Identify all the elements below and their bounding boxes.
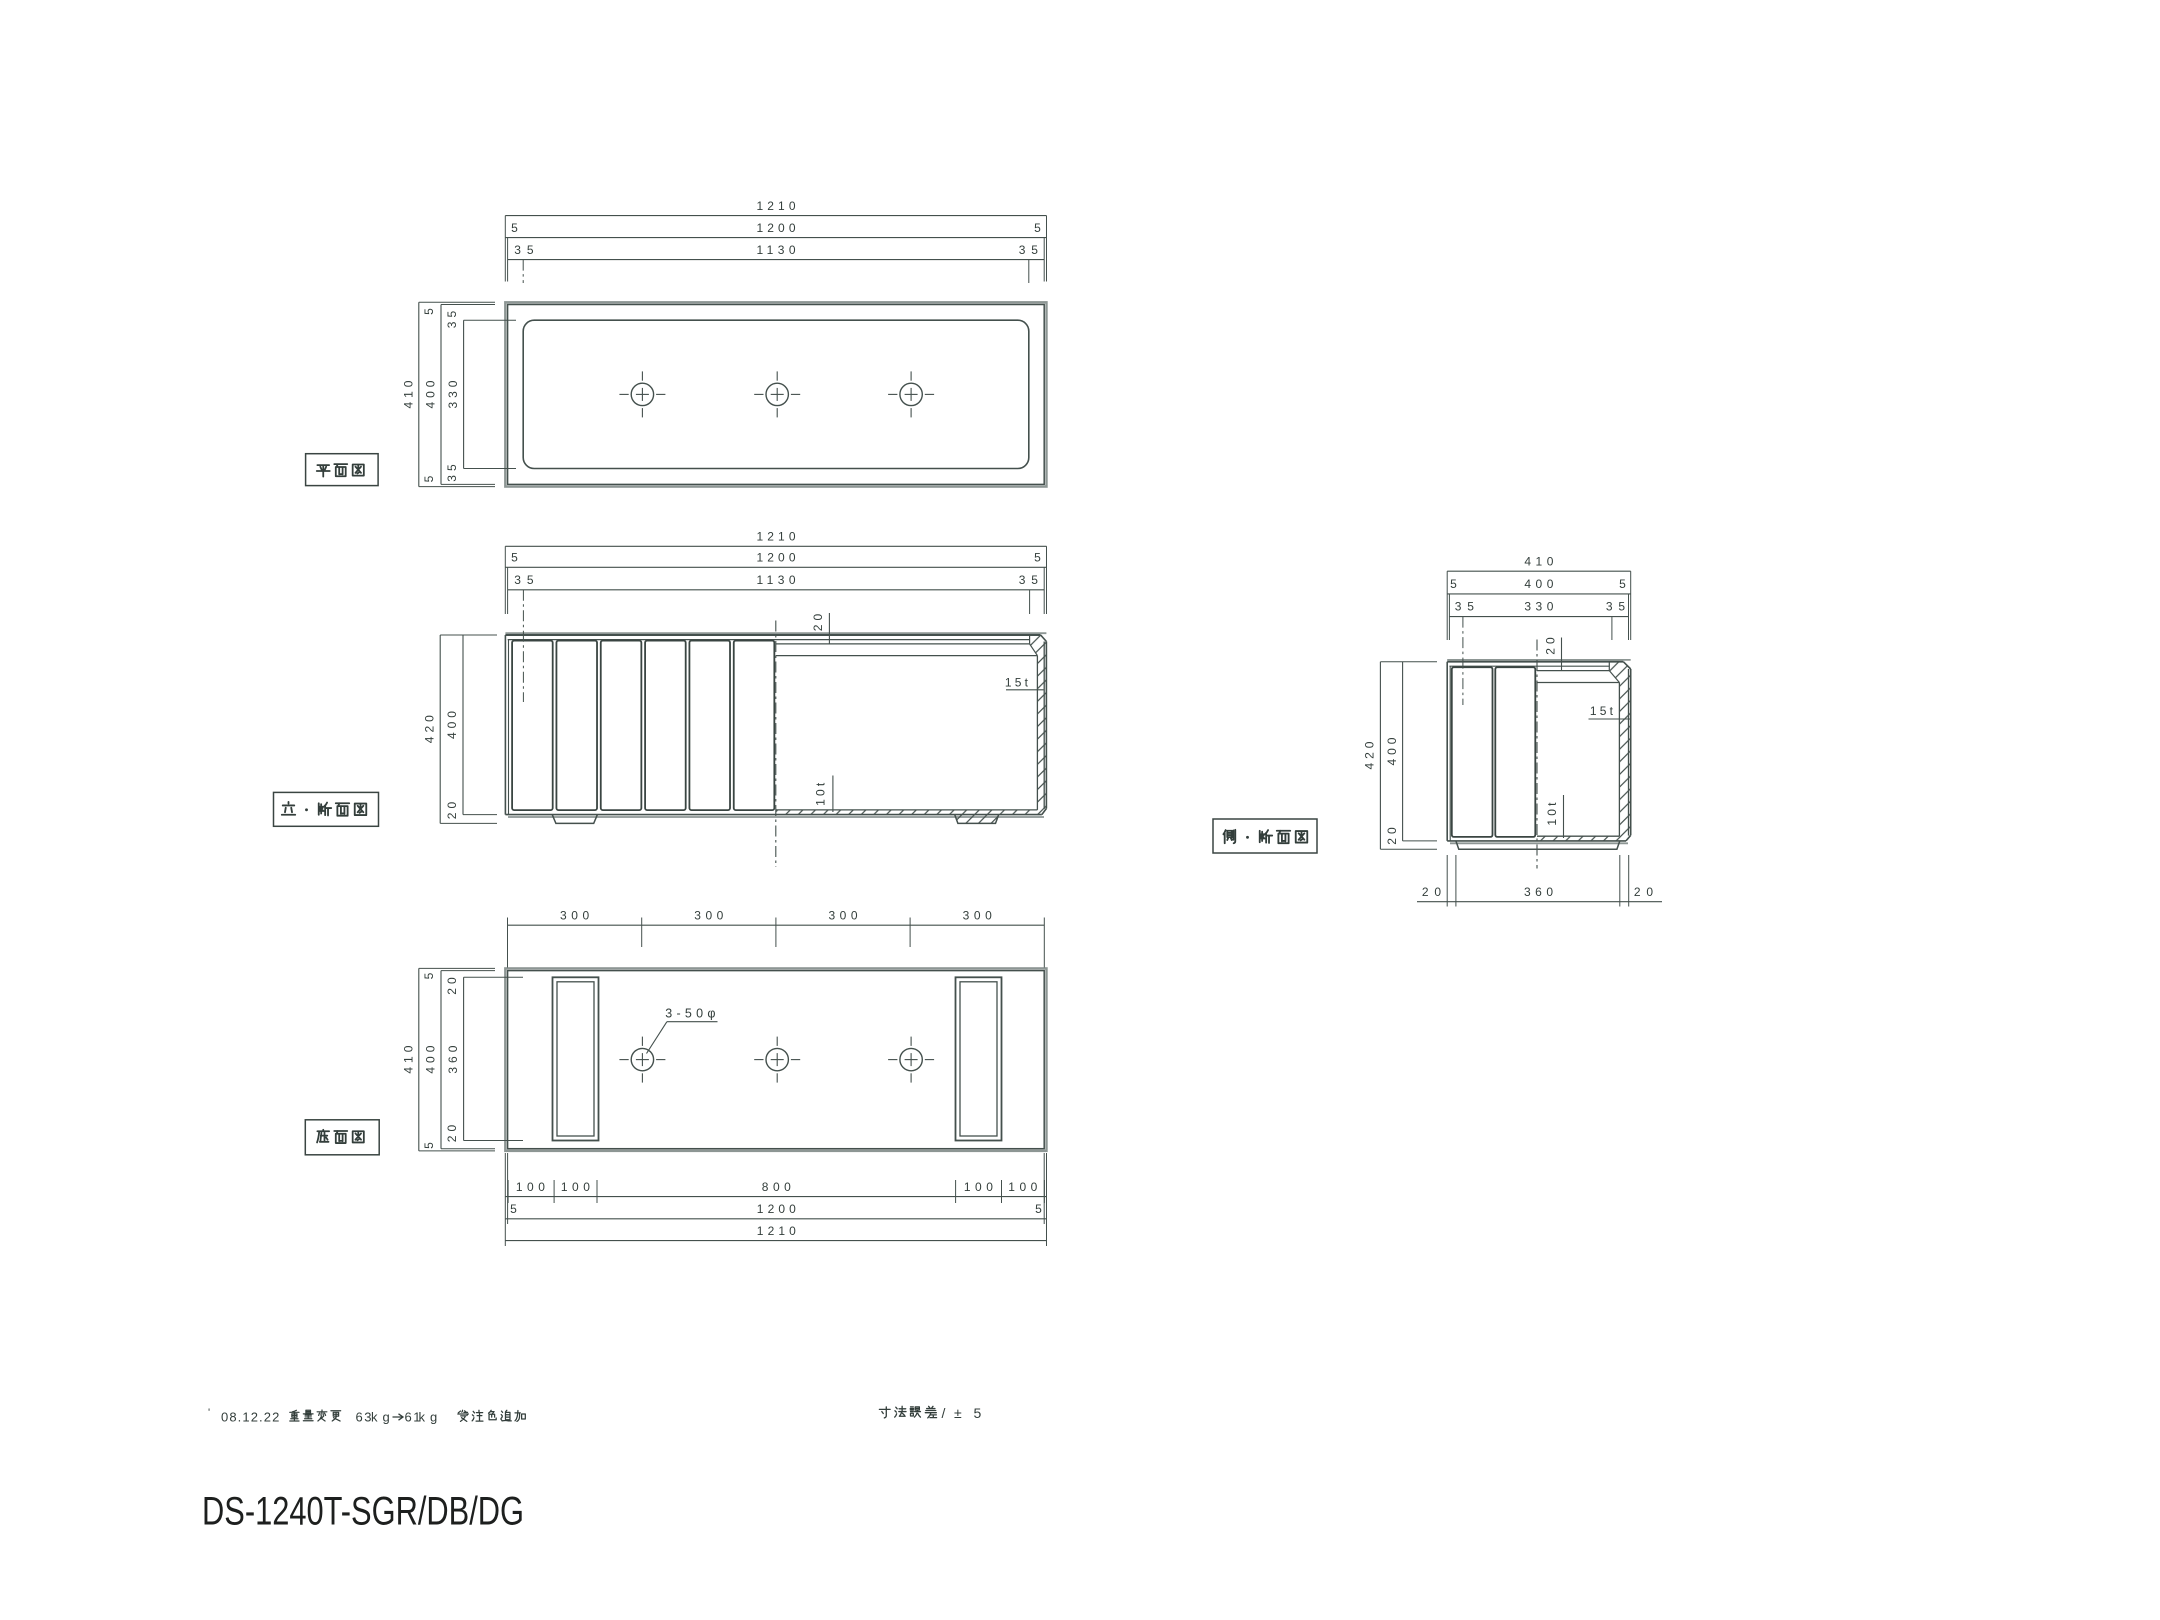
svg-text:20: 20 bbox=[445, 801, 459, 819]
svg-text:1200: 1200 bbox=[757, 1202, 796, 1216]
svg-text:400: 400 bbox=[424, 380, 438, 408]
svg-text:k: k bbox=[371, 1410, 378, 1425]
svg-text:5: 5 bbox=[511, 551, 518, 565]
svg-text:1130: 1130 bbox=[757, 573, 796, 587]
svg-text:1130: 1130 bbox=[757, 243, 796, 257]
svg-text:100: 100 bbox=[964, 1180, 993, 1194]
svg-text:20: 20 bbox=[445, 977, 459, 995]
svg-text:5: 5 bbox=[1034, 551, 1041, 565]
svg-text:400: 400 bbox=[1385, 737, 1399, 765]
svg-text:10t: 10t bbox=[814, 780, 828, 806]
svg-text:100: 100 bbox=[561, 1180, 590, 1194]
svg-text:100: 100 bbox=[1008, 1180, 1037, 1194]
svg-text:20: 20 bbox=[811, 613, 825, 631]
svg-text:410: 410 bbox=[1524, 554, 1553, 568]
svg-text:5: 5 bbox=[974, 1405, 982, 1421]
svg-text:20: 20 bbox=[1422, 885, 1442, 899]
svg-text:1200: 1200 bbox=[757, 221, 796, 235]
svg-text:5: 5 bbox=[422, 972, 436, 979]
svg-text:20: 20 bbox=[445, 1124, 459, 1142]
svg-text:±: ± bbox=[954, 1405, 962, 1421]
svg-text:35: 35 bbox=[445, 310, 459, 328]
svg-text:330: 330 bbox=[446, 380, 460, 408]
svg-text:420: 420 bbox=[1363, 741, 1377, 769]
svg-text:410: 410 bbox=[402, 1045, 416, 1073]
svg-text:5: 5 bbox=[1450, 577, 1457, 591]
svg-text:400: 400 bbox=[424, 1045, 438, 1073]
svg-text:100: 100 bbox=[516, 1180, 545, 1194]
svg-text:360: 360 bbox=[446, 1045, 460, 1073]
svg-text:300: 300 bbox=[828, 908, 857, 922]
svg-text:DS-1240T-SGR/DB/DG: DS-1240T-SGR/DB/DG bbox=[202, 1490, 524, 1534]
svg-text:35: 35 bbox=[1606, 600, 1626, 614]
svg-text:1210: 1210 bbox=[757, 199, 796, 213]
svg-text:5: 5 bbox=[1034, 221, 1041, 235]
svg-text:35: 35 bbox=[514, 243, 534, 257]
svg-text:20: 20 bbox=[1634, 885, 1654, 899]
svg-text:35: 35 bbox=[1019, 243, 1039, 257]
svg-text:5: 5 bbox=[422, 308, 436, 315]
svg-text:300: 300 bbox=[560, 908, 589, 922]
svg-text:800: 800 bbox=[762, 1180, 791, 1194]
svg-text:1210: 1210 bbox=[757, 530, 796, 544]
svg-text:300: 300 bbox=[694, 908, 723, 922]
svg-text:400: 400 bbox=[445, 711, 459, 739]
svg-text:360: 360 bbox=[1524, 885, 1553, 899]
svg-text:3-50φ: 3-50φ bbox=[665, 1006, 720, 1020]
svg-text:420: 420 bbox=[423, 715, 437, 743]
svg-text:g: g bbox=[383, 1410, 390, 1425]
svg-text:10t: 10t bbox=[1545, 799, 1559, 825]
svg-text:g: g bbox=[430, 1410, 437, 1425]
svg-text:k: k bbox=[419, 1410, 426, 1425]
svg-text:300: 300 bbox=[963, 908, 992, 922]
svg-text:35: 35 bbox=[445, 464, 459, 482]
svg-text:5: 5 bbox=[422, 475, 436, 482]
svg-text:35: 35 bbox=[1019, 573, 1039, 587]
svg-text:35: 35 bbox=[514, 573, 534, 587]
svg-text:20: 20 bbox=[1544, 637, 1558, 655]
svg-text:5: 5 bbox=[1619, 577, 1626, 591]
svg-text:5: 5 bbox=[422, 1142, 436, 1149]
svg-text:5: 5 bbox=[510, 1202, 517, 1216]
svg-text:330: 330 bbox=[1524, 600, 1553, 614]
svg-text:400: 400 bbox=[1524, 577, 1553, 591]
svg-text:15t: 15t bbox=[1590, 704, 1616, 718]
svg-text:': ' bbox=[208, 1407, 210, 1419]
svg-text:410: 410 bbox=[402, 380, 416, 408]
svg-text:15t: 15t bbox=[1005, 676, 1031, 690]
svg-text:08.12.22: 08.12.22 bbox=[221, 1410, 280, 1425]
svg-text:/: / bbox=[942, 1405, 946, 1421]
svg-text:1200: 1200 bbox=[757, 551, 796, 565]
svg-text:5: 5 bbox=[1035, 1202, 1042, 1216]
svg-text:5: 5 bbox=[511, 221, 518, 235]
svg-text:35: 35 bbox=[1455, 600, 1475, 614]
svg-text:20: 20 bbox=[1385, 827, 1399, 845]
svg-text:1210: 1210 bbox=[757, 1224, 796, 1238]
